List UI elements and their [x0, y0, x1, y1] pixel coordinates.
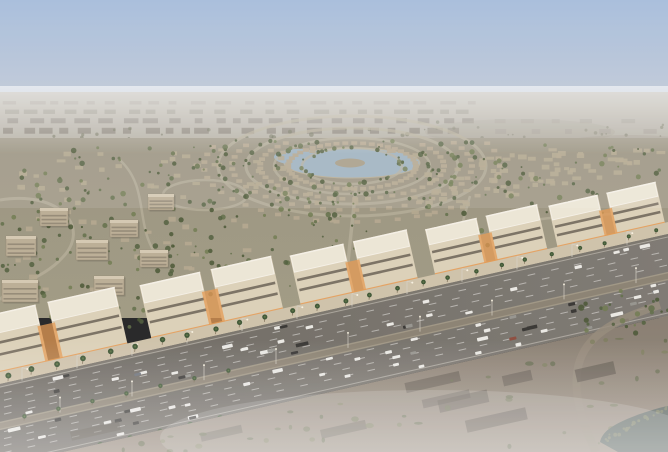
aerial-render-image: [0, 0, 668, 452]
fog-overlay: [0, 0, 668, 452]
scene-svg: [0, 0, 668, 452]
